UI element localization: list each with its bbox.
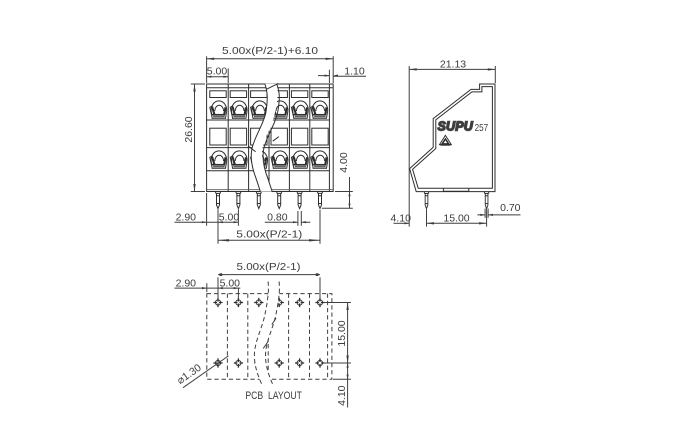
svg-text:PCB LAYOUT: PCB LAYOUT — [245, 390, 302, 402]
svg-text:5.00x(P/2-1)+6.10: 5.00x(P/2-1)+6.10 — [222, 45, 318, 57]
svg-text:2.90: 2.90 — [176, 212, 197, 224]
svg-text:0.80: 0.80 — [267, 212, 288, 224]
svg-text:0.70: 0.70 — [500, 202, 521, 214]
svg-text:1.10: 1.10 — [344, 66, 365, 78]
svg-text:15.00: 15.00 — [443, 212, 469, 224]
svg-text:4.10: 4.10 — [390, 213, 411, 225]
svg-text:5.00: 5.00 — [220, 277, 241, 289]
svg-text:5.00x(P/2-1): 5.00x(P/2-1) — [237, 261, 301, 273]
svg-text:5.00: 5.00 — [207, 66, 228, 78]
svg-text:2.90: 2.90 — [176, 277, 197, 289]
svg-text:15.00: 15.00 — [336, 320, 348, 346]
svg-text:26.60: 26.60 — [183, 116, 195, 142]
svg-text:5.00x(P/2-1): 5.00x(P/2-1) — [236, 228, 302, 240]
svg-text:4.00: 4.00 — [338, 152, 350, 173]
svg-text:4.10: 4.10 — [336, 385, 348, 406]
svg-text:5.00: 5.00 — [219, 212, 240, 224]
svg-text:21.13: 21.13 — [440, 59, 466, 71]
svg-text:257: 257 — [475, 122, 489, 134]
svg-text:SUPU: SUPU — [438, 120, 474, 134]
